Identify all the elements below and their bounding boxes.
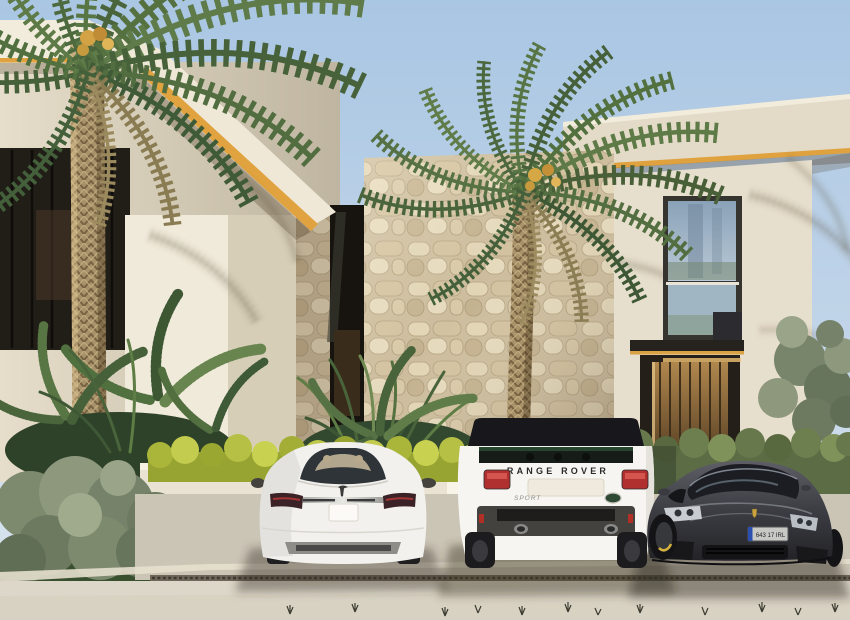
- canopy-gold-edge: [630, 351, 744, 355]
- rr-tailgate-text: RANGE ROVER: [507, 466, 609, 476]
- greenery-reflection: [668, 262, 736, 280]
- rr-taillight-right: [622, 470, 648, 489]
- rr-roof: [468, 418, 644, 446]
- rr-headrest-1: [526, 453, 534, 461]
- rr-rim-right: [624, 540, 640, 562]
- rr-glass-green-reflection: [479, 447, 633, 451]
- headlight-left-lens-1: [675, 510, 682, 517]
- balustrade-rail: [666, 282, 739, 285]
- villa-render: RANGE ROVER SPORT 643 17 IRL: [0, 0, 850, 620]
- rr-sport-badge: SPORT: [514, 495, 541, 502]
- porsche-mirror-left: [658, 489, 670, 496]
- diffuser-inset: [296, 545, 391, 551]
- rr-headrest-2: [554, 453, 562, 461]
- headlight-left-lens-2: [687, 509, 694, 516]
- chrome-dark-2: [347, 499, 375, 501]
- porsche-grille: [702, 545, 788, 559]
- tesla-plate: [329, 504, 358, 521]
- rr-exhaust-left-inner: [517, 526, 525, 532]
- rr-bumper-inset: [497, 509, 615, 521]
- chrome-dark-1: [303, 499, 335, 501]
- rr-reflector-right: [628, 514, 633, 523]
- rr-taillight-left-inner: [487, 473, 507, 479]
- porsche-mirror-right: [801, 485, 811, 491]
- rr-taillight-right-inner: [625, 473, 645, 479]
- rr-headrest-3: [582, 453, 590, 461]
- tall-window: [663, 196, 742, 350]
- rr-rim-left: [472, 540, 488, 562]
- rr-taillight-left: [484, 470, 510, 489]
- cove-light: [663, 358, 741, 362]
- rr-reflector-left: [479, 514, 484, 523]
- land-rover-badge-icon: [605, 493, 621, 503]
- headlight-right-lens-2: [806, 520, 812, 526]
- rr-exhaust-right-inner: [607, 526, 615, 532]
- headrest-right: [355, 455, 363, 463]
- plate-eu-band: [748, 527, 753, 541]
- porsche-plate-text: 643 17 IRL: [756, 533, 786, 539]
- rr-plate-recess: [528, 479, 604, 496]
- headrest-left: [323, 455, 331, 463]
- range-rover-suv: RANGE ROVER SPORT: [458, 418, 654, 568]
- interior-glow: [36, 210, 72, 300]
- render-canvas: RANGE ROVER SPORT 643 17 IRL: [0, 0, 850, 620]
- headlight-right-lens-1: [797, 518, 803, 524]
